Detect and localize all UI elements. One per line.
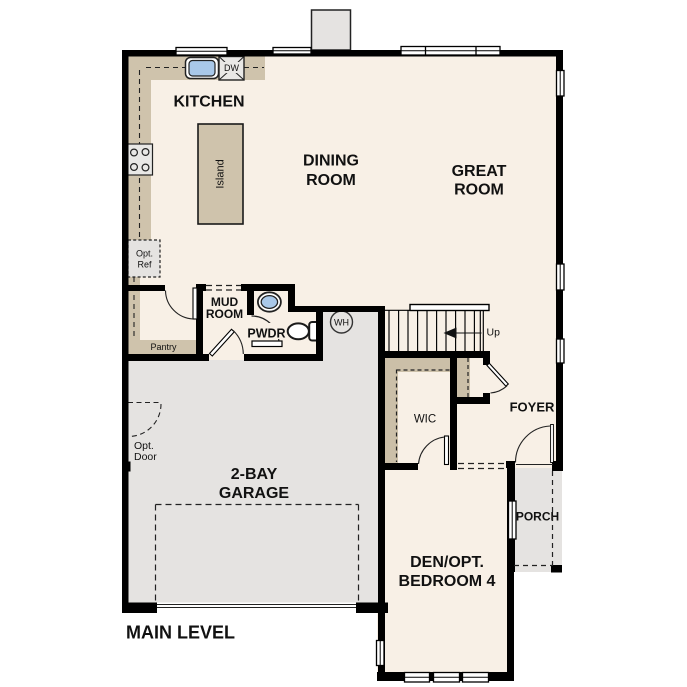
svg-text:Pantry: Pantry bbox=[150, 342, 177, 352]
svg-text:ROOM: ROOM bbox=[306, 172, 356, 189]
svg-text:WIC: WIC bbox=[414, 414, 436, 426]
svg-text:PWDR: PWDR bbox=[247, 327, 285, 341]
svg-text:ROOM: ROOM bbox=[454, 182, 504, 199]
svg-text:ROOM: ROOM bbox=[206, 307, 243, 321]
svg-text:DW: DW bbox=[224, 63, 239, 73]
svg-text:GARAGE: GARAGE bbox=[219, 485, 290, 502]
svg-text:DINING: DINING bbox=[303, 153, 359, 170]
svg-text:2-BAY: 2-BAY bbox=[231, 466, 278, 483]
svg-text:Ref: Ref bbox=[137, 260, 152, 270]
svg-text:GREAT: GREAT bbox=[452, 163, 507, 180]
svg-text:KITCHEN: KITCHEN bbox=[173, 94, 244, 111]
svg-text:MAIN LEVEL: MAIN LEVEL bbox=[126, 623, 235, 643]
svg-text:Door: Door bbox=[134, 451, 157, 463]
svg-text:DEN/OPT.: DEN/OPT. bbox=[410, 554, 484, 571]
svg-text:Island: Island bbox=[215, 159, 227, 188]
svg-text:Up: Up bbox=[487, 327, 501, 339]
svg-text:WH: WH bbox=[334, 318, 349, 328]
svg-text:BEDROOM 4: BEDROOM 4 bbox=[399, 573, 496, 590]
svg-text:Opt.: Opt. bbox=[136, 249, 153, 259]
svg-text:FOYER: FOYER bbox=[510, 400, 555, 415]
